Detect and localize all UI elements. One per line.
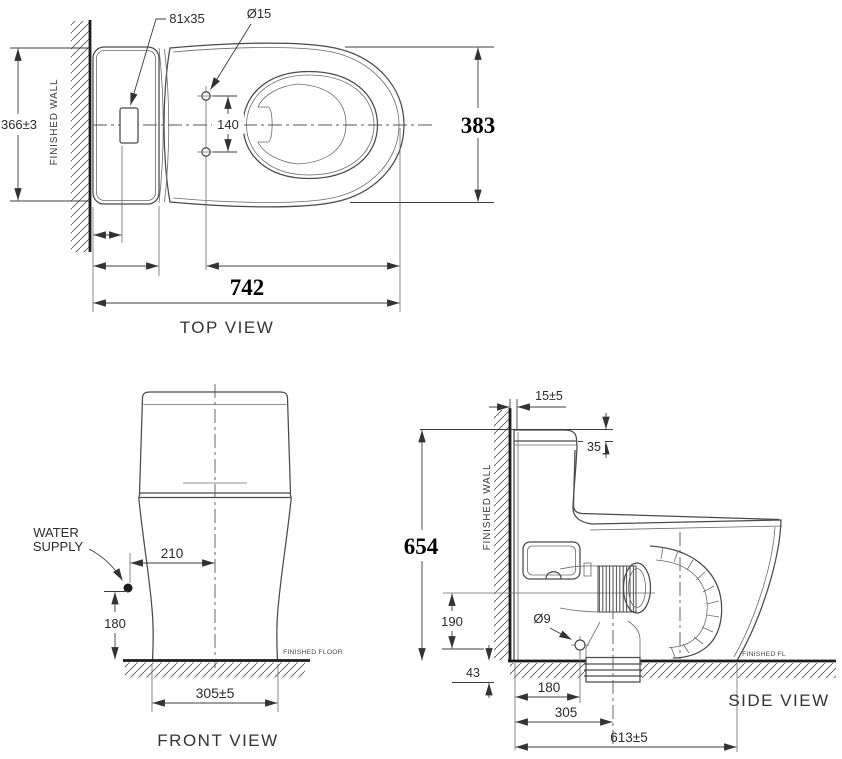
dim-supply-offset: 210 <box>130 546 214 583</box>
dim-floor-offset: 43 <box>452 645 494 698</box>
outlet-gasket <box>598 566 636 612</box>
dim-label-dia9: Ø9 <box>533 611 550 626</box>
bolt-hole <box>575 640 585 650</box>
flush-button-outline <box>120 108 138 143</box>
water-supply-label-line2: SUPPLY <box>33 539 84 554</box>
dim-outlet-height: 190 <box>433 594 484 649</box>
dim-label-81x35: 81x35 <box>169 11 204 26</box>
front-view: WATER SUPPLY 210 180 FINISHED FLOOR 305±… <box>33 384 343 750</box>
dim-label-190: 190 <box>441 614 463 629</box>
dim-label-742: 742 <box>230 275 265 300</box>
dim-label-43: 43 <box>466 666 480 680</box>
dim-label-15: 15±5 <box>535 389 563 403</box>
finished-wall-label-top: FINISHED WALL <box>49 79 60 166</box>
dim-label-dia15: Ø15 <box>247 6 272 21</box>
side-view: FINISHED WALL <box>398 389 836 752</box>
top-view: 140 81x35 Ø15 366±3 FINISHED WALL 383 <box>0 6 501 337</box>
dim-label-383: 383 <box>461 113 496 138</box>
access-panel-outline <box>523 542 580 579</box>
water-supply-label-line1: WATER <box>33 525 79 540</box>
front-bowl-right-edge <box>277 493 291 661</box>
dim-label-210: 210 <box>161 546 184 561</box>
floor-hatching-side <box>510 663 836 678</box>
dim-label-366: 366±3 <box>1 117 37 132</box>
dim-label-613: 613±5 <box>610 730 647 745</box>
dim-label-140: 140 <box>217 117 239 132</box>
wall-hatching <box>71 21 90 252</box>
front-bowl-left-edge <box>139 493 153 661</box>
dim-label-180-side: 180 <box>538 680 561 695</box>
finished-floor-label: FINISHED FLOOR <box>283 649 343 656</box>
technical-drawing: 140 81x35 Ø15 366±3 FINISHED WALL 383 <box>0 0 842 759</box>
dim-label-35: 35 <box>587 440 601 454</box>
drawing-page: 140 81x35 Ø15 366±3 FINISHED WALL 383 <box>0 0 842 759</box>
top-view-title: TOP VIEW <box>180 318 275 337</box>
dim-wall-to-outlet: 305 <box>516 705 613 722</box>
finished-floor-label-side: FINISHED FL <box>742 651 786 658</box>
dim-label-654: 654 <box>404 534 439 559</box>
water-supply-leader <box>89 549 123 581</box>
wall-hatching-side <box>494 410 510 660</box>
finished-wall-label-side: FINISHED WALL <box>482 464 493 551</box>
front-view-title: FRONT VIEW <box>157 731 278 750</box>
dim-supply-height: 180 <box>97 592 133 660</box>
dim-label-305-front: 305±5 <box>196 685 235 701</box>
side-view-title: SIDE VIEW <box>728 691 829 710</box>
dim-lid-height: 35 <box>578 413 613 458</box>
hinge-curve-1 <box>159 48 163 203</box>
dim-label-305-side: 305 <box>555 705 578 720</box>
dim-label-180-front: 180 <box>104 616 126 631</box>
side-seat-lid-line <box>574 450 780 520</box>
